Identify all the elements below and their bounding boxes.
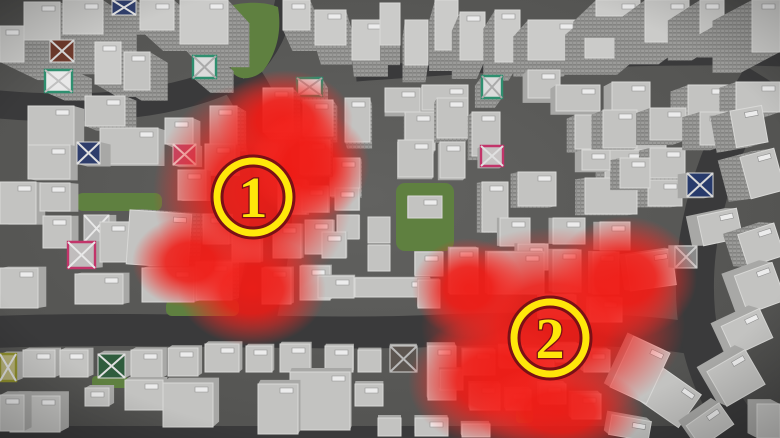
- city-map-image: 1 2: [0, 0, 780, 438]
- zone-1-number: 1: [239, 165, 268, 230]
- zone-2-number: 2: [536, 306, 565, 371]
- city-map-scene: 1 2: [0, 0, 780, 438]
